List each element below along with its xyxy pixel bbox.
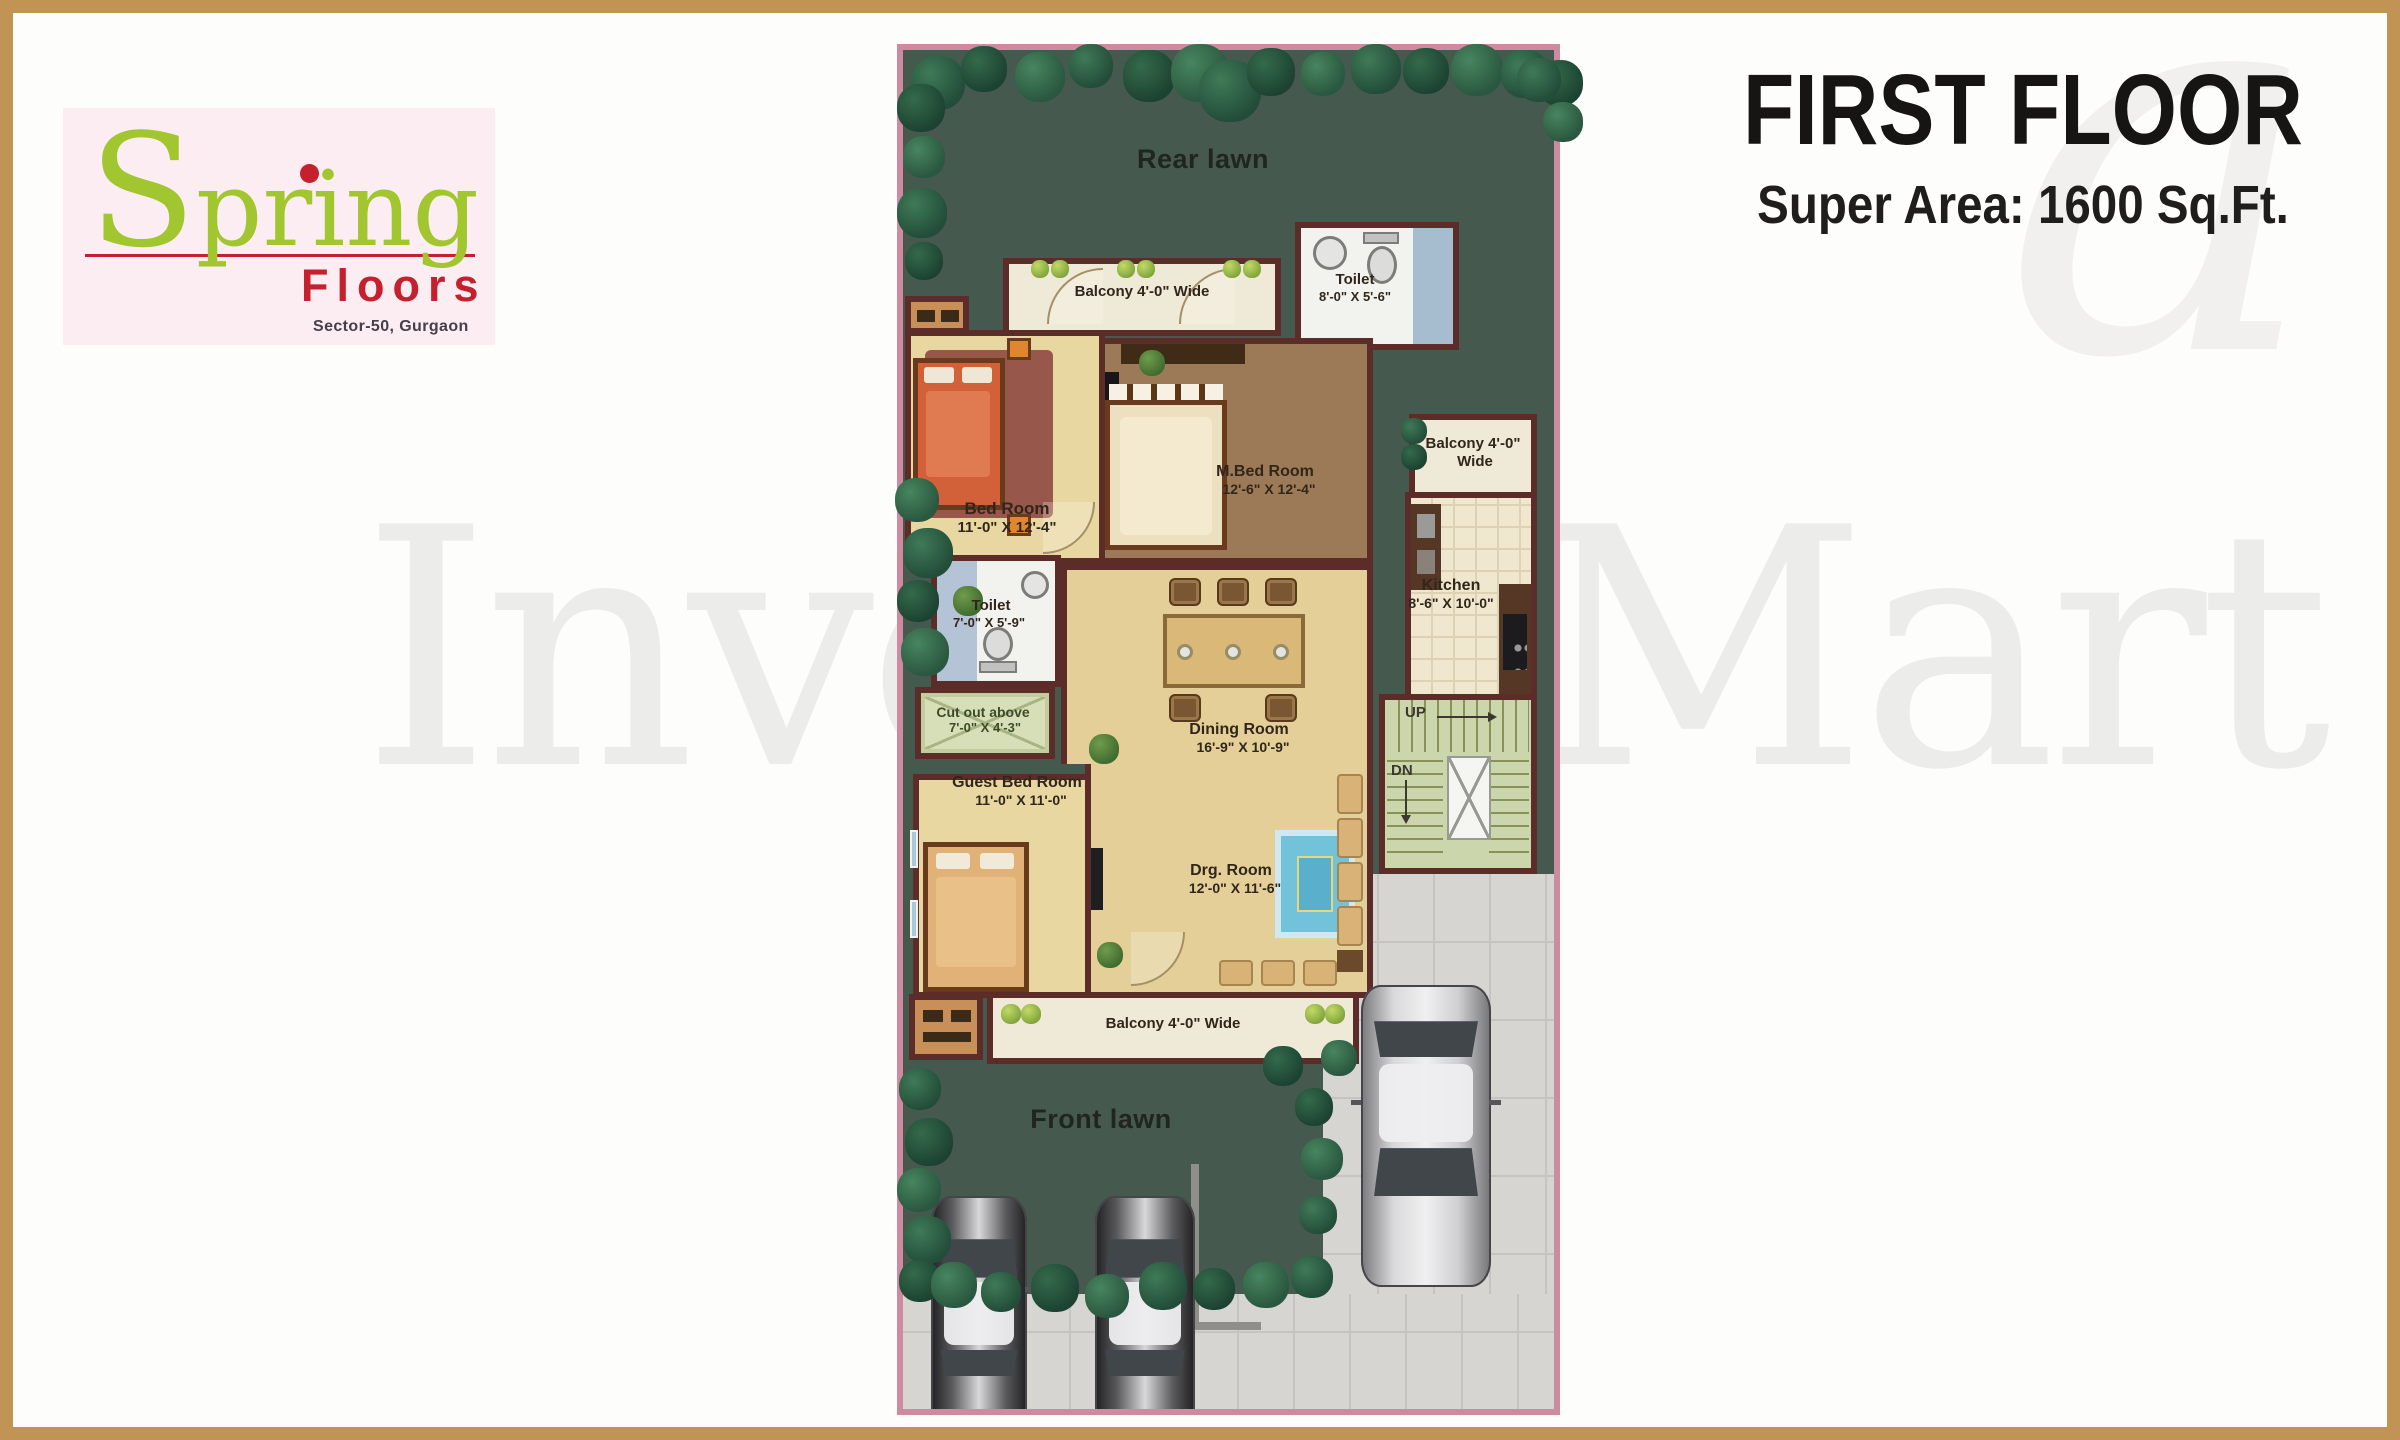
sofa-seat: [1219, 960, 1253, 986]
master-bed-size: 12'-6" X 12'-4": [1222, 482, 1315, 496]
rack-item: [941, 310, 959, 322]
bed-pillow: [936, 853, 970, 869]
logo-subbrand-text: Floors: [301, 260, 487, 312]
car-rear-window: [941, 1350, 1018, 1376]
page-subtitle: Super Area: 1600 Sq.Ft.: [1715, 174, 2331, 236]
header-block: FIRST FLOOR Super Area: 1600 Sq.Ft.: [1673, 53, 2373, 236]
rack-item: [951, 1010, 971, 1022]
dining-size: 16'-9" X 10'-9": [1196, 740, 1289, 754]
nightstand: [1007, 338, 1031, 360]
car-windshield: [1105, 1239, 1185, 1277]
car: [1361, 985, 1491, 1287]
floor-plan: UP DN: [897, 44, 1560, 1415]
stair-treads: [1489, 752, 1529, 864]
plate-icon: [1273, 644, 1289, 660]
shoe-rack-top: [905, 296, 969, 334]
guest-bed-name: Guest Bed Room: [952, 775, 1082, 791]
car: [931, 1196, 1027, 1409]
guest-bed-size: 11'-0" X 11'-0": [975, 793, 1067, 807]
cut-out-name: Cut out above: [936, 705, 1029, 719]
room-master-bed: [1099, 338, 1373, 564]
car-roof: [1379, 1064, 1473, 1143]
tv-unit: [1091, 848, 1103, 910]
car-roof: [944, 1282, 1013, 1344]
rack-item: [923, 1010, 943, 1022]
dining-table: [1163, 614, 1305, 688]
kitchen-sink: [1417, 514, 1435, 538]
cut-out-size: 7'-0" X 4'-3": [949, 721, 1021, 734]
plate-icon: [1225, 644, 1241, 660]
logo-location-text: Sector-50, Gurgaon: [313, 318, 469, 336]
bed-pillow: [962, 367, 992, 383]
compound-wall: [1191, 1322, 1261, 1330]
window-icon: [910, 830, 918, 868]
wc-bowl-icon: [983, 627, 1013, 661]
stairs-up-label: UP: [1405, 704, 1426, 721]
drawing-room-size: 12'-0" X 11'-6": [1189, 881, 1281, 895]
toilet-mid-name: Toilet: [972, 598, 1011, 613]
wc-tank-icon: [1363, 232, 1399, 244]
floor-plan-canvas: UP DN: [903, 50, 1554, 1409]
sofa-seat: [1261, 960, 1295, 986]
down-arrow-icon: [1405, 780, 1407, 816]
bed-room-size: 11'-0" X 12'-4": [958, 520, 1057, 535]
toilet-top-name: Toilet: [1336, 272, 1375, 287]
front-lawn-label: Front lawn: [1030, 1106, 1172, 1133]
logo-brand-text: Spring: [89, 110, 479, 274]
bed-pillow: [924, 367, 954, 383]
balcony-top-label: Balcony 4'-0" Wide: [1075, 284, 1210, 299]
wash-basin-icon: [1021, 571, 1049, 599]
stair-landing: [1447, 756, 1491, 840]
rear-lawn-label: Rear lawn: [1137, 146, 1269, 173]
dining-chair: [1265, 578, 1297, 606]
dining-chair: [1169, 578, 1201, 606]
kitchen-name: Kitchen: [1422, 578, 1481, 594]
room-toilet-top: [1295, 222, 1459, 350]
page-title: FIRST FLOOR: [1729, 53, 2317, 168]
bed-duvet: [1120, 417, 1212, 535]
car-rear-window: [1105, 1350, 1185, 1376]
master-bed: [1105, 400, 1227, 550]
rug-center: [1297, 856, 1333, 912]
headboard: [1109, 384, 1223, 400]
dining-chair: [1169, 694, 1201, 722]
plate-icon: [1177, 644, 1193, 660]
logo-badge: Spring Floors Sector-50, Gurgaon: [63, 108, 495, 345]
window-icon: [910, 900, 918, 938]
toilet-top-size: 8'-0" X 5'-6": [1319, 290, 1391, 303]
sofa-seat: [1303, 960, 1337, 986]
sofa-seat: [1337, 774, 1363, 814]
balcony-bottom-label: Balcony 4'-0" Wide: [1106, 1016, 1241, 1031]
up-arrow-icon: [1437, 716, 1489, 718]
car-windshield: [1374, 1148, 1478, 1196]
car-roof: [1109, 1282, 1181, 1344]
logo-i-dot-icon: [300, 164, 319, 183]
dining-name: Dining Room: [1189, 722, 1289, 738]
dining-chair: [1217, 578, 1249, 606]
room-stairs: UP DN: [1379, 694, 1537, 874]
sofa-seat: [1337, 862, 1363, 902]
stove-icon: [1503, 614, 1527, 670]
rack-item: [917, 310, 935, 322]
wash-basin-icon: [1313, 236, 1347, 270]
car-rear-window: [1374, 1021, 1478, 1057]
bed-quilt: [926, 391, 990, 477]
stairs-down-label: DN: [1391, 762, 1413, 779]
dining-chair: [1265, 694, 1297, 722]
brochure-page: InvestoMart a Spring Floors Sector-50, G…: [0, 0, 2400, 1440]
rack-item: [923, 1032, 971, 1042]
sofa-seat: [1337, 818, 1363, 858]
door-arc: [1131, 932, 1185, 986]
wardrobe: [1121, 344, 1245, 364]
double-bed: [913, 358, 1005, 510]
balcony-right-line1: Balcony 4'-0": [1426, 436, 1521, 451]
kitchen-shelf: [1417, 550, 1435, 574]
bed-quilt: [936, 877, 1016, 967]
kitchen-size: 8'-6" X 10'-0": [1408, 596, 1493, 610]
master-bed-name: M.Bed Room: [1216, 464, 1314, 480]
side-table: [1337, 950, 1363, 972]
balcony-right-line2: Wide: [1457, 454, 1493, 469]
sofa-seat: [1337, 906, 1363, 946]
bed-pillow: [980, 853, 1014, 869]
drawing-room-name: Drg. Room: [1190, 863, 1272, 879]
toilet-mid-size: 7'-0" X 5'-9": [953, 616, 1025, 629]
bed-room-name: Bed Room: [965, 500, 1050, 517]
shower-area: [1413, 228, 1453, 344]
shoe-rack-bottom: [909, 994, 983, 1060]
wc-tank-icon: [979, 661, 1017, 673]
car: [1095, 1196, 1195, 1409]
guest-bed: [923, 842, 1029, 992]
car-windshield: [941, 1239, 1018, 1277]
